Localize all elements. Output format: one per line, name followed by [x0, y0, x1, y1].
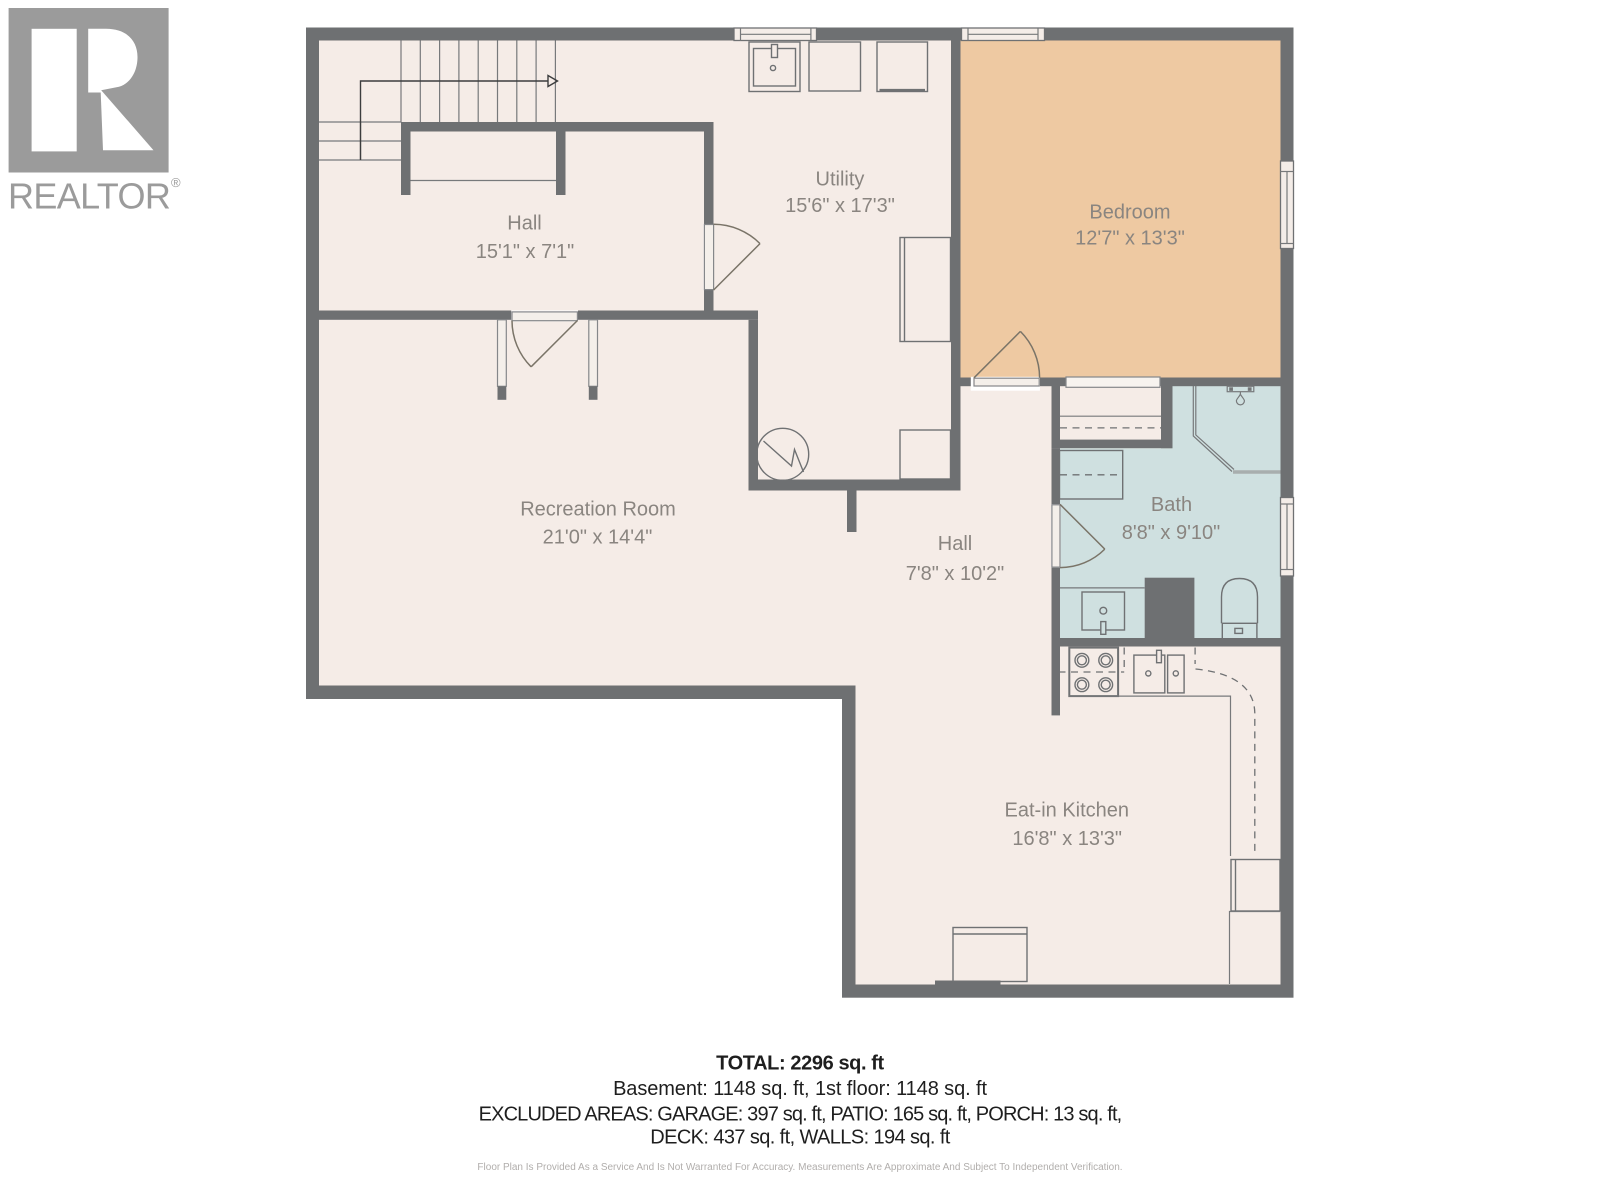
svg-text:Floor Plan Is Provided As a Se: Floor Plan Is Provided As a Service And …: [477, 1162, 1122, 1173]
svg-text:21'0" x 14'4": 21'0" x 14'4": [543, 526, 653, 548]
svg-text:TOTAL: 2296 sq. ft: TOTAL: 2296 sq. ft: [716, 1053, 884, 1075]
svg-text:7'8" x 10'2": 7'8" x 10'2": [906, 563, 1005, 585]
svg-text:Bath: Bath: [1151, 494, 1192, 516]
svg-text:15'1" x 7'1": 15'1" x 7'1": [476, 241, 575, 263]
svg-text:EXCLUDED AREAS: GARAGE: 397 sq: EXCLUDED AREAS: GARAGE: 397 sq. ft, PATI…: [479, 1104, 1122, 1126]
svg-text:Eat-in Kitchen: Eat-in Kitchen: [1005, 800, 1130, 822]
svg-text:REALTOR: REALTOR: [8, 176, 170, 217]
svg-text:DECK: 437 sq. ft, WALLS: 194 s: DECK: 437 sq. ft, WALLS: 194 sq. ft: [650, 1127, 951, 1149]
svg-text:Utility: Utility: [816, 169, 865, 191]
svg-text:Recreation Room: Recreation Room: [520, 498, 676, 520]
svg-text:Bedroom: Bedroom: [1089, 202, 1170, 224]
svg-text:Hall: Hall: [938, 533, 972, 555]
svg-text:8'8" x 9'10": 8'8" x 9'10": [1122, 522, 1221, 544]
svg-text:12'7" x 13'3": 12'7" x 13'3": [1075, 228, 1185, 250]
svg-text:Basement: 1148 sq. ft, 1st flo: Basement: 1148 sq. ft, 1st floor: 1148 s…: [613, 1078, 987, 1100]
svg-text:15'6" x 17'3": 15'6" x 17'3": [785, 195, 895, 217]
svg-text:16'8" x 13'3": 16'8" x 13'3": [1012, 828, 1122, 850]
svg-text:®: ®: [171, 175, 181, 190]
svg-text:Hall: Hall: [507, 213, 541, 235]
